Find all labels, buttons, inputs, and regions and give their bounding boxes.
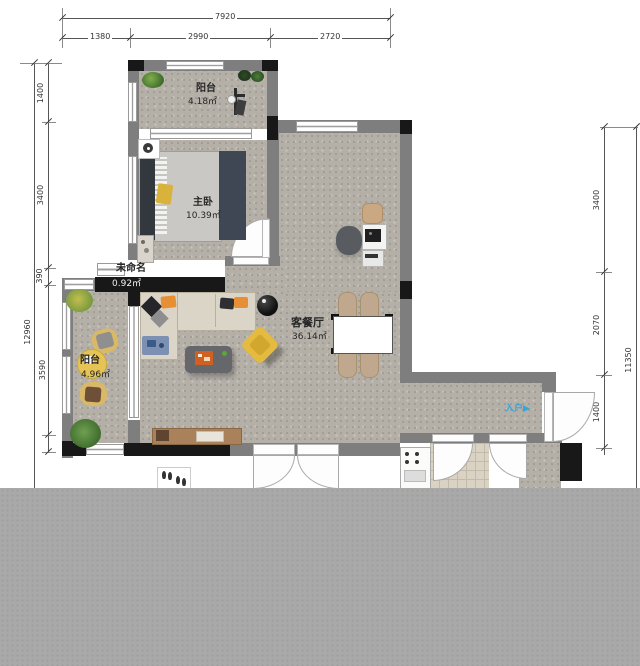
laptop-icon [369,232,372,235]
drying-rack-icon [237,94,245,97]
dim-ext [62,8,63,48]
bed-headboard[interactable] [140,151,155,240]
dim-top-seg2: 2990 [186,33,210,41]
wall [542,372,556,392]
wall [400,372,548,383]
stove-burner [415,460,419,464]
bedroom-door-jamb [233,257,269,265]
tray-item [198,354,202,357]
entry-arrow-icon: ▶ [523,404,530,414]
footprints-icon [168,472,172,480]
bedroom-door-leaf[interactable] [262,219,270,258]
rattan-chair-cushion [84,386,101,402]
room-label-unnamed[interactable]: 未命名 [116,264,146,274]
dim-left-seg2-label: 3400 [35,175,47,215]
window [62,302,71,350]
rug-item [147,340,156,347]
dim-ext [600,127,638,128]
dining-table[interactable] [333,316,393,354]
door-opening [432,434,474,442]
dim-right-total-label: 11350 [623,340,635,380]
room-label-master-bedroom[interactable]: 主卧 [193,198,213,208]
footprints-icon [182,478,186,486]
wall [400,126,412,380]
door-arc[interactable] [253,455,295,489]
room-label-balcony-left[interactable]: 阳台 [80,356,100,366]
footprints-icon [162,471,166,479]
dim-left-seg4-label: 3590 [37,350,49,390]
bed-blanket[interactable] [156,183,174,205]
wall [128,420,140,443]
entry-door-arc[interactable] [553,392,595,442]
bench-item [144,248,149,253]
wall-column [400,281,412,299]
dim-ext [42,435,56,436]
laptop-icon [365,229,381,242]
floor-plan-canvas: 7920 1380 2990 2720 12960 1400 3400 390 … [0,0,640,666]
dim-left-seg1-label: 1400 [35,73,47,113]
wall-column [400,120,412,134]
counter-item [156,430,169,441]
dim-top-seg3: 2720 [318,33,342,41]
dim-top-seg1: 1380 [88,33,112,41]
table-plant-icon [222,351,227,356]
pillow[interactable] [234,297,248,308]
sofa-seam [215,294,216,327]
door-opening [489,434,527,442]
wall-column [128,60,144,71]
dim-ext [42,452,56,453]
ball-highlight [262,299,266,303]
entry-label: 入户 [505,404,523,414]
plant-icon[interactable] [251,71,264,82]
dim-ext [390,8,391,48]
window [128,156,137,244]
window [296,121,358,132]
pillow[interactable] [220,297,235,309]
room-label-living-dining[interactable]: 客餐厅 [291,317,324,328]
dim-ext [20,63,62,64]
entry-door-leaf[interactable] [544,392,553,442]
wall-column [262,60,278,71]
entry-marker: 入户▶ [505,405,530,414]
plant-icon[interactable] [142,72,164,88]
dining-chair[interactable] [338,351,357,378]
window-slider [150,128,252,139]
door-opening [297,444,339,455]
dim-left-seg3-label: 390 [34,256,46,296]
stove-burner [405,460,409,464]
dim-left-total-label: 12960 [22,312,34,352]
pillow[interactable] [160,295,176,309]
plant-icon[interactable] [238,70,251,81]
ball-speaker[interactable] [257,295,278,316]
stove-burner [405,452,409,456]
stove-burner [415,452,419,456]
cutting-board [196,431,224,442]
sofa-seam [177,294,178,327]
wall-column [560,443,582,481]
bed-duvet[interactable] [219,151,246,240]
dim-right-seg1-label: 3400 [591,180,603,220]
plant-icon[interactable] [70,419,101,448]
dim-top-total: 7920 [213,13,237,21]
room-area-unnamed: 0.92㎡ [112,280,141,289]
window [166,61,224,70]
printer-slot [365,254,378,258]
bench-item [141,240,145,244]
door-arc[interactable] [297,455,339,489]
room-label-balcony-top[interactable]: 阳台 [196,84,216,94]
dim-right-seg2-label: 2070 [591,305,603,345]
bean-bag[interactable] [336,226,362,255]
rug-item [159,343,164,348]
gray-overlay [0,488,640,666]
door-arc[interactable] [489,443,527,479]
dining-chair[interactable] [360,292,379,319]
window [128,82,137,122]
dim-right-seg-line [604,127,605,455]
window-slider [129,306,139,418]
dim-ext [42,122,56,123]
window [62,356,71,414]
plant-icon[interactable] [66,289,93,312]
desk-chair[interactable] [362,203,383,224]
wall-column [267,116,278,140]
footprints-icon [176,476,180,484]
room-area-balcony-left: 4.96㎡ [81,371,110,380]
room-area-balcony-top: 4.18㎡ [188,98,217,107]
sink [404,470,426,482]
room-area-living-dining: 36.14㎡ [292,333,327,342]
rack-bucket [227,95,236,104]
door-opening [253,444,295,455]
dining-chair[interactable] [360,351,379,378]
dim-right-total-line [636,127,637,490]
printer[interactable] [362,250,384,267]
room-area-master-bedroom: 10.39㎡ [186,212,221,221]
fan-icon [147,147,150,150]
dining-chair[interactable] [338,292,357,319]
tray-item [204,357,210,361]
